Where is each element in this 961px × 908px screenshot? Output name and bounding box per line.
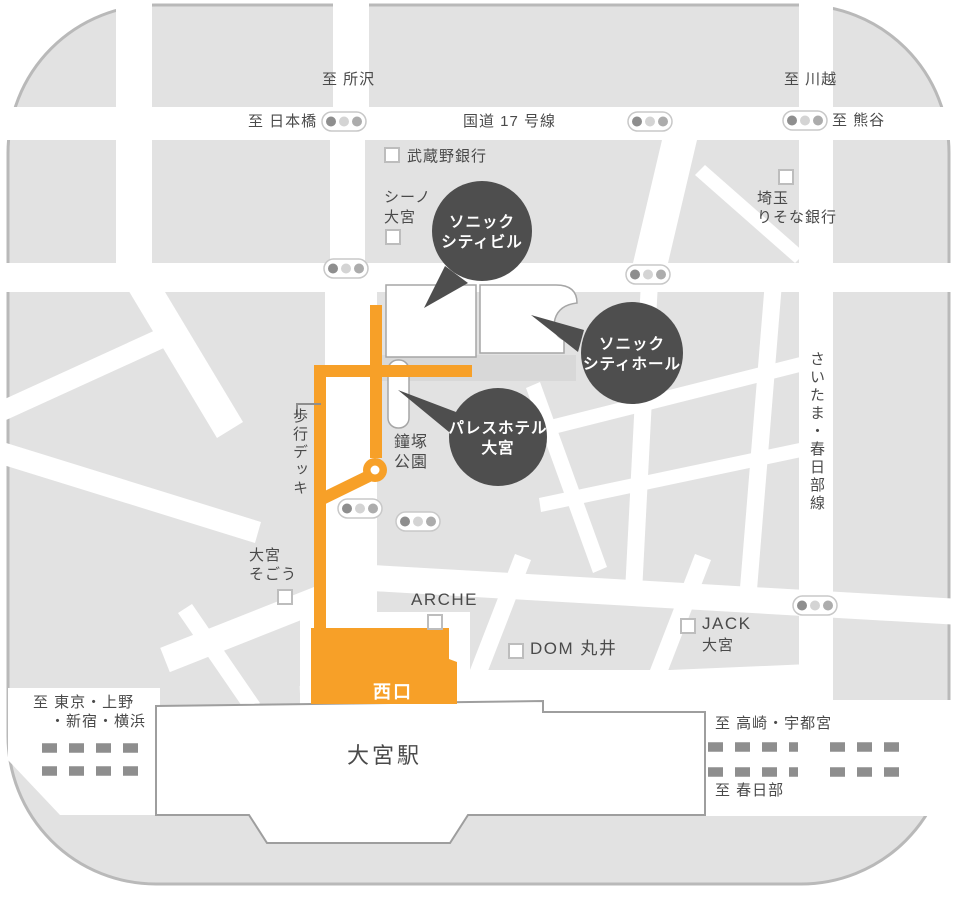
label-route17: 国道 17 号線 <box>463 113 556 131</box>
label-to-kawagoe: 至 川越 <box>784 71 837 89</box>
road-tokorozawa <box>333 0 369 110</box>
building-marker-icon <box>384 147 400 163</box>
label-saitama-kasukabe-line: さいたま・春日部線 <box>807 351 825 513</box>
label-scene-omiya-1: シーノ <box>384 189 431 207</box>
label-omiya-station: 大宮駅 <box>347 747 422 765</box>
bubble-text-sonic-city-hall: ソニック シティホール <box>583 335 681 375</box>
label-arche: ARCHE <box>411 591 478 609</box>
traffic-light-icon <box>626 265 670 284</box>
label-to-tokorozawa: 至 所沢 <box>322 71 375 89</box>
bubble-text-sonic-city-building: ソニック シティビル <box>441 213 523 253</box>
building-marker-icon <box>778 169 794 185</box>
label-kanetsuka-park-1: 鐘塚 <box>394 434 428 452</box>
label-to-kasukabe: 至 春日部 <box>715 782 784 800</box>
building-marker-icon <box>427 614 443 630</box>
label-to-tokyo-2: ・新宿・横浜 <box>50 713 146 731</box>
traffic-light-icon <box>628 112 672 131</box>
building-marker-icon <box>385 229 401 245</box>
label-scene-omiya-2: 大宮 <box>384 209 416 227</box>
label-jack-2: 大宮 <box>702 637 734 655</box>
label-west-exit: 西口 <box>373 678 413 704</box>
traffic-light-icon <box>324 259 368 278</box>
label-to-nihonbashi: 至 日本橋 <box>248 113 317 131</box>
traffic-light-icon <box>783 111 827 130</box>
label-saitama-resona-1: 埼玉 <box>757 190 789 208</box>
label-kanetsuka-park-2: 公園 <box>394 454 428 472</box>
label-pedestrian-deck: 歩行デッキ <box>290 408 308 498</box>
label-jack-1: JACK <box>702 615 751 633</box>
label-musashino-bank: 武蔵野銀行 <box>407 148 487 166</box>
building-marker-icon <box>277 589 293 605</box>
building-marker-icon <box>508 643 524 659</box>
label-saitama-resona-2: りそな銀行 <box>757 209 837 227</box>
traffic-light-icon <box>338 499 382 518</box>
traffic-light-icon <box>793 596 837 615</box>
label-to-takasaki: 至 高崎・宇都宮 <box>715 715 832 733</box>
traffic-light-icon <box>396 512 440 531</box>
road-left-vertical <box>116 0 152 278</box>
label-dom-marui: DOM 丸井 <box>530 640 617 658</box>
access-map: 至 所沢 至 川越 至 日本橋 国道 17 号線 至 熊谷 武蔵野銀行 シーノ … <box>0 0 961 908</box>
label-omiya-sogo-1: 大宮 <box>249 547 281 565</box>
label-omiya-sogo-2: そごう <box>249 566 297 584</box>
traffic-light-icon <box>322 112 366 131</box>
road-mid-vertical <box>330 140 365 265</box>
building-marker-icon <box>680 618 696 634</box>
label-to-kumagaya: 至 熊谷 <box>832 112 885 130</box>
label-to-tokyo-1: 至 東京・上野 <box>33 694 134 712</box>
bubble-text-palace-hotel: パレスホテル 大宮 <box>448 419 547 459</box>
